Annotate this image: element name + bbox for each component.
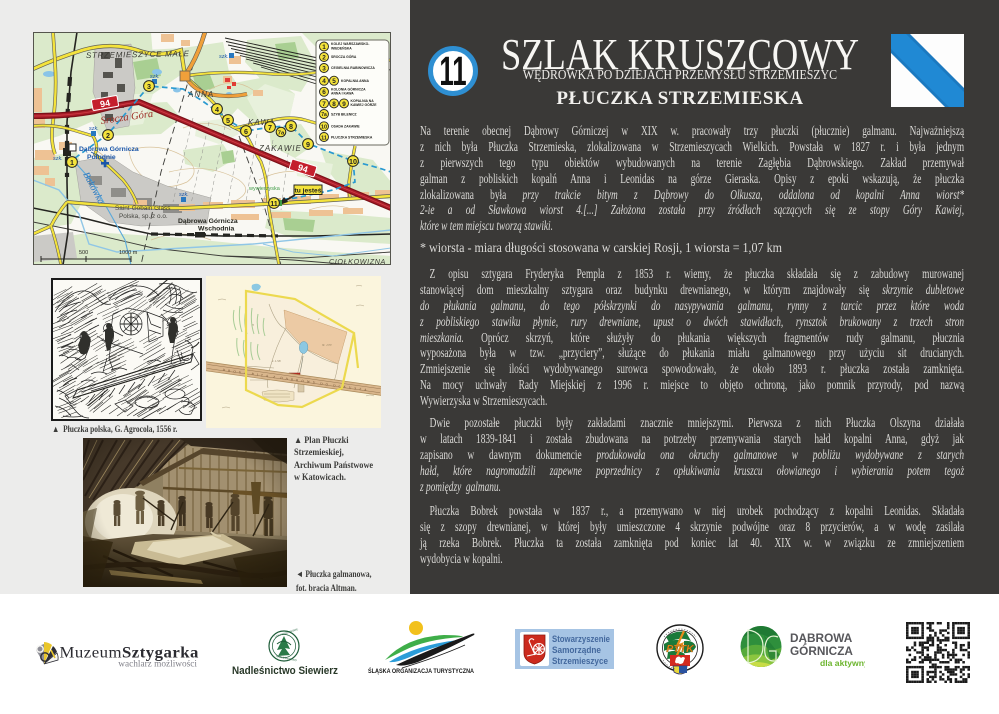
svg-text:DĄBROWA: DĄBROWA	[790, 631, 853, 645]
svg-text:WIEDEŃSKA: WIEDEŃSKA	[331, 45, 352, 50]
svg-text:500: 500	[79, 250, 88, 256]
svg-text:N. 170: N. 170	[321, 343, 332, 347]
svg-text:GÓRNICZA: GÓRNICZA	[790, 644, 853, 658]
svg-text:ANNA I KAWA: ANNA I KAWA	[331, 92, 354, 96]
svg-text:6: 6	[244, 127, 248, 136]
svg-text:szk.: szk.	[219, 54, 229, 60]
svg-text:CEGIELNIA RABINOWICZA: CEGIELNIA RABINOWICZA	[331, 66, 375, 70]
svg-text:CIOŁKOWIZNA: CIOŁKOWIZNA	[329, 257, 386, 265]
svg-text:x 1.58: x 1.58	[271, 359, 281, 363]
svg-text:2: 2	[322, 54, 326, 61]
svg-text:Południe: Południe	[87, 154, 116, 161]
svg-text:7a: 7a	[321, 112, 327, 118]
svg-text:wachlarz możliwości: wachlarz możliwości	[118, 660, 197, 670]
svg-text:11: 11	[270, 199, 278, 208]
svg-text:ZAKAWIE: ZAKAWIE	[258, 144, 302, 153]
svg-text:KOPALNIA ANNA: KOPALNIA ANNA	[341, 79, 369, 83]
svg-text:STRZEMIESZYCE MAŁE: STRZEMIESZYCE MAŁE	[86, 49, 190, 60]
svg-text:ŚLĄSKA ORGANIZACJA TURYSTYCZNA: ŚLĄSKA ORGANIZACJA TURYSTYCZNA	[368, 668, 474, 675]
svg-text:1: 1	[318, 317, 320, 321]
svg-text:3: 3	[147, 82, 151, 91]
svg-text:wywierzyska: wywierzyska	[248, 186, 281, 192]
svg-text:5: 5	[332, 78, 336, 85]
svg-text:1000 m: 1000 m	[119, 250, 138, 256]
svg-text:Strzemieszyce: Strzemieszyce	[552, 656, 608, 666]
svg-text:SZYB BILENICZ: SZYB BILENICZ	[331, 112, 357, 116]
svg-text:SROCZA GÓRA: SROCZA GÓRA	[331, 54, 357, 59]
svg-text:11: 11	[321, 135, 327, 141]
svg-text:9: 9	[342, 101, 346, 108]
svg-text:4: 4	[215, 105, 219, 114]
svg-text:7a: 7a	[278, 130, 285, 136]
svg-text:9: 9	[306, 140, 310, 149]
svg-text:Samorządne: Samorządne	[552, 645, 601, 655]
svg-text:1: 1	[70, 158, 74, 167]
svg-text:Nadleśnictwo Siewierz: Nadleśnictwo Siewierz	[232, 665, 338, 677]
svg-text:7: 7	[322, 101, 326, 108]
svg-text:KAWIEJ GÓRZE: KAWIEJ GÓRZE	[351, 102, 378, 107]
svg-text:PTTK: PTTK	[666, 643, 695, 655]
svg-text:7: 7	[268, 123, 272, 132]
svg-text:tu jesteś: tu jesteś	[295, 187, 322, 194]
svg-text:ANNA: ANNA	[187, 90, 214, 99]
svg-text:1: 1	[322, 44, 326, 51]
svg-text:5: 5	[226, 116, 230, 125]
svg-text:10: 10	[349, 157, 357, 166]
svg-text:3: 3	[252, 323, 254, 327]
svg-text:8: 8	[289, 122, 293, 131]
svg-text:2: 2	[106, 131, 110, 140]
svg-text:Stowarzyszenie: Stowarzyszenie	[552, 634, 610, 644]
svg-text:94: 94	[99, 98, 111, 110]
svg-text:dla aktywnych: dla aktywnych	[820, 658, 865, 668]
svg-text:Polska, sp. z o.o.: Polska, sp. z o.o.	[119, 213, 168, 220]
svg-text:4: 4	[322, 78, 326, 85]
svg-text:10: 10	[321, 125, 327, 131]
svg-text:3: 3	[322, 65, 326, 72]
svg-text:PŁUCZKA STRZEMIESKA: PŁUCZKA STRZEMIESKA	[331, 135, 373, 139]
svg-text:Saint-Gobain Glass: Saint-Gobain Glass	[115, 205, 170, 212]
svg-text:OSADA ZAKAWIE: OSADA ZAKAWIE	[331, 125, 360, 129]
svg-text:szk.: szk.	[53, 156, 63, 162]
svg-text:6: 6	[322, 89, 326, 96]
svg-text:Dąbrowa Górnicza: Dąbrowa Górnicza	[79, 146, 139, 153]
svg-text:Wschodnia: Wschodnia	[198, 226, 234, 233]
svg-text:8: 8	[332, 101, 336, 108]
svg-text:Dąbrowa Górnicza: Dąbrowa Górnicza	[178, 218, 238, 225]
